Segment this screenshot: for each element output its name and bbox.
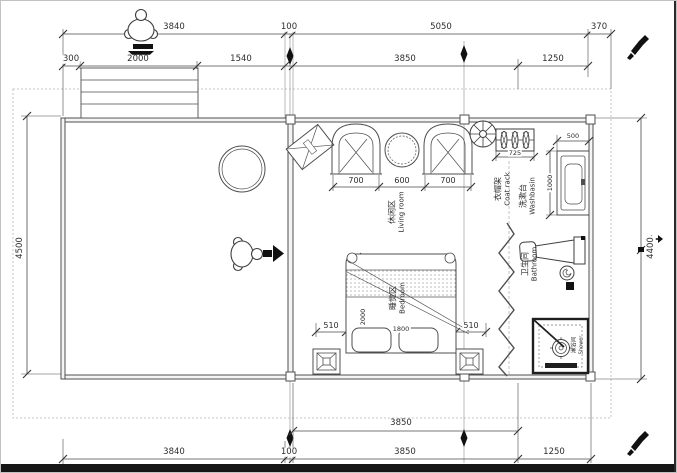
- person-entry-icon: [125, 10, 158, 42]
- nightstand-left: [313, 349, 340, 374]
- grid-lines: [285, 29, 464, 463]
- person-indoor-icon: [231, 238, 263, 271]
- deck-round-table: [219, 146, 265, 192]
- shower-label: 淋浴间 Shower: [571, 336, 584, 355]
- bathroom-label-zh: 卫生间: [521, 247, 531, 281]
- dim-top2-3850: 3850: [393, 55, 417, 64]
- washbasin-label: 洗漱台 Washbasin: [519, 177, 538, 215]
- bedroom-label: 睡觉区 Bedroom: [389, 282, 408, 314]
- bedroom-label-en: Bedroom: [399, 282, 408, 314]
- washbasin-label-en: Washbasin: [529, 177, 538, 215]
- dim-bed-1800: 1800: [392, 326, 411, 333]
- armchair-right: [422, 124, 474, 174]
- dim-bottom1-3850: 3850: [389, 419, 413, 428]
- dim-table-600: 600: [393, 177, 410, 185]
- dim-bed-510-right: 510: [462, 322, 479, 330]
- living-room-label: 休闲区 Living room: [388, 191, 407, 232]
- bedroom-label-zh: 睡觉区: [389, 282, 399, 314]
- dim-bottom2-1250: 1250: [542, 448, 566, 457]
- bed: [346, 253, 469, 353]
- dim-coatrack-725: 725: [508, 150, 522, 157]
- floor-plan-page: 3840 100 5050 370 300 2000 1540 3850 125…: [0, 0, 677, 473]
- entry-steps: [81, 68, 198, 118]
- pen-icon-bottom-right: [627, 431, 649, 456]
- dim-top-100: 100: [280, 23, 298, 32]
- dim-top2-300: 300: [62, 55, 80, 64]
- dim-chair-700-right: 700: [439, 177, 456, 185]
- dim-top-5050: 5050: [429, 23, 453, 32]
- living-room-label-en: Living room: [398, 191, 407, 232]
- dim-washbasin-500: 500: [566, 133, 580, 140]
- dim-top2-1250: 1250: [541, 55, 565, 64]
- coat-rack-label: 衣帽架 Coat rack: [494, 172, 513, 206]
- dim-bottom2-3850: 3850: [393, 448, 417, 457]
- washbasin-counter: [557, 151, 589, 215]
- bathroom-label: 卫生间 Bathroom: [521, 247, 540, 281]
- floor-plan-drawing: [1, 1, 677, 473]
- nightstand-right: [456, 349, 483, 374]
- living-room-label-zh: 休闲区: [388, 191, 398, 232]
- dim-top-370: 370: [590, 23, 608, 32]
- folding-partition: [499, 223, 514, 376]
- survey-markers: [287, 45, 468, 447]
- dim-top2-2000: 2000: [126, 55, 150, 64]
- indoor-right-arrow-icon: [263, 245, 284, 262]
- shower-label-en: Shower: [578, 336, 584, 355]
- round-tea-table: [385, 133, 419, 167]
- dim-bed-2000: 2000: [360, 308, 367, 327]
- dim-right-4400: 4400: [647, 236, 656, 260]
- shower-label-zh: 淋浴间: [571, 336, 578, 355]
- ceiling-fan-icon: [470, 121, 496, 147]
- dim-bottom2-100: 100: [280, 448, 298, 457]
- armchair-left: [330, 124, 382, 174]
- pen-icon-top-right: [627, 35, 649, 60]
- dim-mid-dot: [638, 247, 644, 252]
- dim-left-4500: 4500: [16, 236, 25, 260]
- dim-top2-1540: 1540: [229, 55, 253, 64]
- dim-chair-700-left: 700: [347, 177, 364, 185]
- coat-rack-label-en: Coat rack: [504, 172, 513, 206]
- washbasin-label-zh: 洗漱台: [519, 177, 529, 215]
- coat-rack: [496, 129, 534, 151]
- bathroom-label-en: Bathroom: [531, 247, 540, 281]
- page-edge-bottom: [1, 464, 677, 472]
- dim-top-3840: 3840: [162, 23, 186, 32]
- dim-bed-510-left: 510: [322, 322, 339, 330]
- dim-washbasin-1000: 1000: [547, 174, 554, 193]
- dim-bottom2-3840: 3840: [162, 448, 186, 457]
- coat-rack-label-zh: 衣帽架: [494, 172, 504, 206]
